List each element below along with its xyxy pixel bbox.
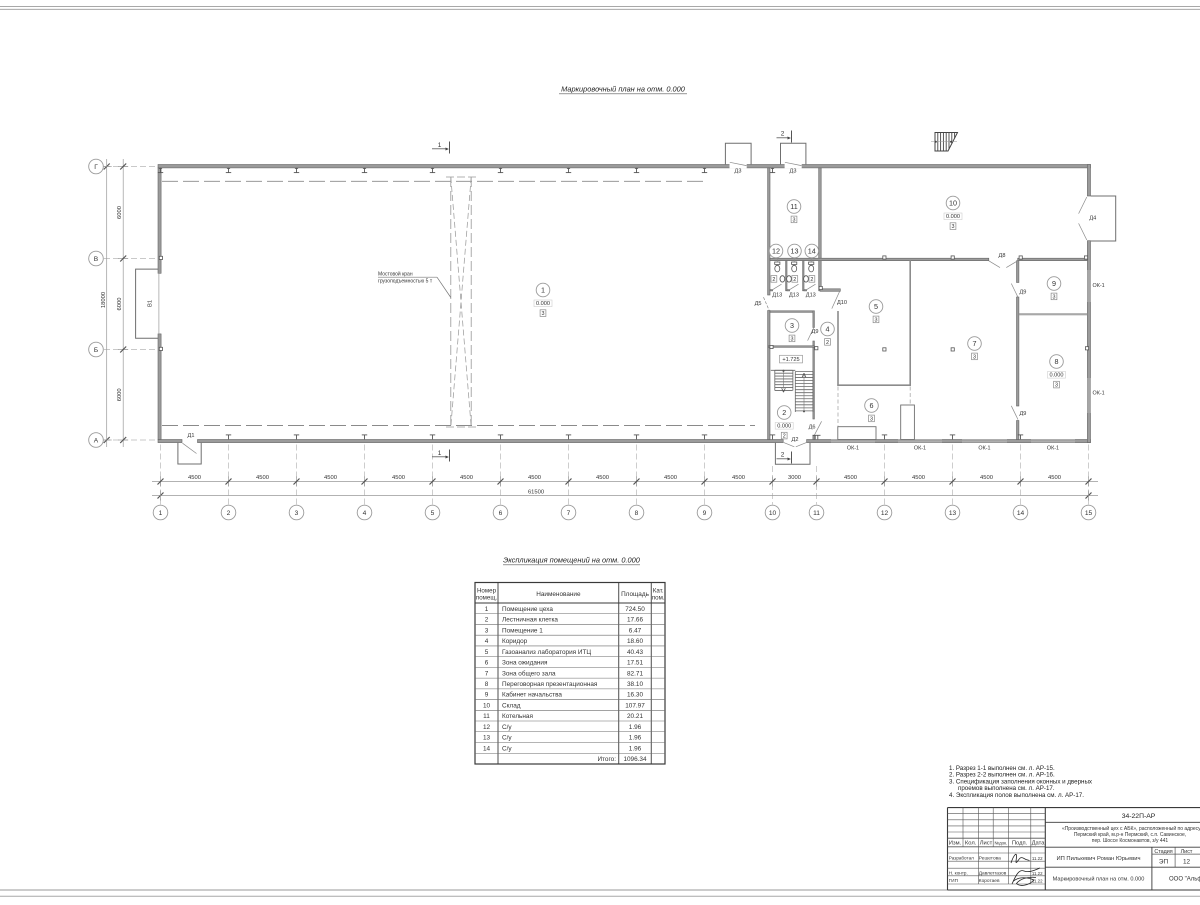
svg-text:Д13: Д13 [772,293,782,299]
svg-text:Д9: Д9 [812,329,819,335]
svg-text:9: 9 [703,510,707,517]
svg-text:724.50: 724.50 [625,606,645,613]
svg-text:38.10: 38.10 [627,681,643,688]
svg-text:0.000: 0.000 [1050,373,1064,379]
svg-text:6: 6 [499,510,503,517]
svg-text:Д13: Д13 [789,293,799,299]
svg-text:4: 4 [363,510,367,517]
svg-text:4500: 4500 [664,475,677,481]
svg-text:Д3: Д3 [790,169,797,175]
svg-text:82.71: 82.71 [627,670,643,677]
svg-text:13: 13 [949,510,957,517]
svg-text:4500: 4500 [392,475,405,481]
svg-text:Котельная: Котельная [502,713,533,720]
svg-text:12: 12 [772,247,780,256]
svg-text:11: 11 [813,510,820,517]
svg-text:ИП Пилькевич Роман Юрьевич: ИП Пилькевич Роман Юрьевич [1056,856,1140,862]
svg-text:Д13: Д13 [806,293,816,299]
svg-text:9: 9 [485,692,489,699]
svg-text:4500: 4500 [912,475,925,481]
svg-text:ООО "Альфа": ООО "Альфа" [1169,876,1200,882]
svg-text:Номер: Номер [477,587,497,594]
svg-text:11.22: 11.22 [1032,871,1043,876]
svg-text:ГИП: ГИП [949,878,958,883]
svg-text:2: 2 [810,277,813,283]
svg-text:Переговорная презентационная: Переговорная презентационная [502,681,598,688]
svg-text:С/у: С/у [502,724,512,731]
svg-text:Давлетгазов: Давлетгазов [979,870,1007,876]
svg-text:1: 1 [541,286,545,295]
svg-text:17.66: 17.66 [627,617,643,624]
svg-text:4500: 4500 [844,475,857,481]
svg-text:Лестничная клетка: Лестничная клетка [502,617,558,624]
svg-text:6000: 6000 [117,298,123,311]
svg-text:5: 5 [485,649,489,656]
svg-text:Кат.: Кат. [653,587,664,594]
svg-text:ОК-1: ОК-1 [1047,446,1059,452]
svg-text:1: 1 [438,450,442,457]
svg-text:Помещение 1: Помещение 1 [502,627,543,634]
svg-text:Н. контр.: Н. контр. [949,870,968,875]
svg-text:1096.34: 1096.34 [623,756,647,763]
svg-text:12: 12 [483,724,491,731]
svg-text:11: 11 [790,202,797,211]
svg-text:18.60: 18.60 [627,638,643,645]
svg-text:пер. Шоссе Космонавтов, з/у 44: пер. Шоссе Космонавтов, з/у 441 [1092,838,1169,844]
svg-text:4: 4 [826,325,830,334]
svg-text:1: 1 [438,142,442,149]
svg-text:0.000: 0.000 [777,424,791,430]
svg-text:18000: 18000 [101,292,107,308]
svg-text:15: 15 [1085,510,1093,517]
svg-text:3: 3 [870,416,873,422]
svg-text:3: 3 [542,311,545,317]
svg-text:4500: 4500 [1048,475,1061,481]
svg-text:Коротаев: Коротаев [979,878,1000,884]
svg-text:+1.725: +1.725 [782,357,799,363]
svg-text:0.000: 0.000 [946,214,960,220]
svg-text:13: 13 [791,247,799,256]
svg-text:3: 3 [485,627,489,634]
svg-text:14: 14 [483,745,491,752]
svg-text:3: 3 [973,354,976,360]
svg-text:10: 10 [949,199,957,208]
svg-text:14: 14 [1017,510,1025,517]
svg-text:Д9: Д9 [1020,411,1027,417]
svg-text:Г: Г [94,164,98,171]
svg-text:ЭП: ЭП [1159,859,1169,866]
svg-text:3: 3 [1053,294,1056,300]
svg-text:Д8: Д8 [999,253,1006,259]
svg-text:Лист: Лист [980,841,993,847]
svg-text:Площадь: Площадь [621,591,649,598]
svg-text:2: 2 [793,277,796,283]
svg-text:Кол.: Кол. [965,841,977,847]
svg-text:Зона общего зала: Зона общего зала [502,669,556,677]
svg-text:Д10: Д10 [837,300,847,306]
svg-text:0.000: 0.000 [536,301,550,307]
svg-text:3: 3 [790,321,794,330]
svg-text:4500: 4500 [460,475,473,481]
svg-text:1.96: 1.96 [629,745,642,752]
svg-text:С/у: С/у [502,735,512,742]
svg-text:Экспликация помещений на отм.: Экспликация помещений на отм. 0.000 [503,556,641,565]
svg-text:10: 10 [483,702,491,709]
svg-text:2: 2 [826,340,829,346]
svg-text:4500: 4500 [256,475,269,481]
svg-text:1: 1 [159,510,163,517]
svg-text:3: 3 [793,217,796,223]
svg-text:5: 5 [874,302,878,311]
svg-text:14: 14 [808,247,816,256]
svg-text:Изм.: Изм. [949,841,962,847]
svg-text:Д4: Д4 [1089,216,1096,222]
svg-text:107.97: 107.97 [625,702,645,709]
svg-text:6000: 6000 [117,388,123,401]
svg-text:Мостовой кран: Мостовой кран [378,270,413,277]
svg-text:3: 3 [875,317,878,323]
svg-text:11.22: 11.22 [1032,856,1043,861]
svg-text:40.43: 40.43 [627,649,643,656]
svg-text:4500: 4500 [324,475,337,481]
svg-text:Помещение цеха: Помещение цеха [502,606,553,613]
svg-text:3: 3 [791,336,794,342]
svg-text:Склад: Склад [502,702,521,709]
svg-text:Д2: Д2 [792,437,799,443]
svg-text:1: 1 [485,606,489,613]
svg-text:Д3: Д3 [735,169,742,175]
svg-text:ОК-1: ОК-1 [914,446,926,452]
svg-text:8: 8 [635,510,639,517]
svg-text:6000: 6000 [117,206,123,219]
svg-text:С/у: С/у [502,745,512,752]
svg-text:11: 11 [483,713,490,720]
svg-text:4500: 4500 [732,475,745,481]
svg-text:7: 7 [485,670,489,677]
svg-text:ОК-1: ОК-1 [1093,391,1105,397]
svg-text:Д6: Д6 [809,424,816,430]
svg-text:2: 2 [485,617,489,624]
svg-text:2: 2 [227,510,231,517]
svg-text:Разработал: Разработал [949,856,974,861]
svg-text:8: 8 [1055,357,1059,366]
svg-text:Газоанализ лаборатория ИТЦ: Газоанализ лаборатория ИТЦ [502,648,591,656]
svg-text:Итого:: Итого: [597,756,616,763]
svg-text:ОК-1: ОК-1 [847,446,859,452]
svg-text:помещ.: помещ. [476,595,498,602]
svg-text:7: 7 [973,339,977,348]
svg-text:4500: 4500 [980,475,993,481]
svg-text:9: 9 [1052,279,1056,288]
svg-text:20.21: 20.21 [627,713,643,720]
svg-text:3: 3 [295,510,299,517]
svg-text:Коридор: Коридор [502,638,528,645]
svg-text:3: 3 [952,224,955,230]
svg-text:2: 2 [772,277,775,283]
svg-text:1.96: 1.96 [629,724,642,731]
svg-text:пом.: пом. [652,595,665,602]
svg-text:2: 2 [783,434,786,440]
svg-text:5: 5 [431,510,435,517]
svg-text:6.47: 6.47 [629,627,642,634]
svg-text:Дата: Дата [1032,841,1046,847]
svg-text:12: 12 [1183,859,1191,866]
svg-text:Кабинет начальства: Кабинет начальства [502,691,562,699]
svg-text:Подп.: Подп. [1012,841,1028,847]
svg-text:грузоподъемностью 5 т: грузоподъемностью 5 т [378,278,433,284]
svg-text:61500: 61500 [528,489,544,495]
svg-text:34-22П-АР: 34-22П-АР [1122,813,1156,820]
svg-text:12: 12 [881,510,889,517]
svg-text:6: 6 [870,401,874,410]
svg-text:2: 2 [782,408,786,417]
svg-text:ОК-1: ОК-1 [1093,283,1105,289]
svg-text:3: 3 [1055,383,1058,389]
svg-text:А: А [94,438,99,445]
svg-text:7: 7 [567,510,571,517]
svg-text:13: 13 [483,735,491,742]
svg-text:1.96: 1.96 [629,735,642,742]
svg-text:4500: 4500 [528,475,541,481]
svg-text:Д9: Д9 [1020,290,1027,296]
svg-text:Наименование: Наименование [536,591,581,598]
svg-text:Решетова: Решетова [979,856,1001,862]
svg-text:В: В [94,256,99,263]
svg-text:4: 4 [485,638,489,645]
svg-text:№док.: №док. [994,841,1007,846]
svg-text:3000: 3000 [788,475,801,481]
svg-text:Д5: Д5 [755,301,762,307]
svg-text:4500: 4500 [188,475,201,481]
svg-text:4. Экспликация полов выполнена: 4. Экспликация полов выполнена см. л. АР… [949,792,1084,799]
svg-text:16.30: 16.30 [627,692,643,699]
svg-text:Б: Б [94,347,98,354]
svg-text:2: 2 [781,131,785,138]
svg-text:4500: 4500 [596,475,609,481]
svg-text:Д1: Д1 [188,433,195,439]
svg-text:6: 6 [485,660,489,667]
svg-text:8: 8 [485,681,489,688]
svg-text:2: 2 [781,452,785,459]
svg-text:ОК-1: ОК-1 [978,446,990,452]
svg-text:Маркировочный план на отм. 0.: Маркировочный план на отм. 0.000 [561,85,686,94]
svg-text:10: 10 [769,510,777,517]
svg-text:Зона ожидания: Зона ожидания [502,660,548,667]
svg-text:Маркировочный план на отм. 0.0: Маркировочный план на отм. 0.000 [1053,875,1145,882]
svg-text:В1: В1 [148,300,154,307]
svg-text:17.51: 17.51 [627,660,643,667]
